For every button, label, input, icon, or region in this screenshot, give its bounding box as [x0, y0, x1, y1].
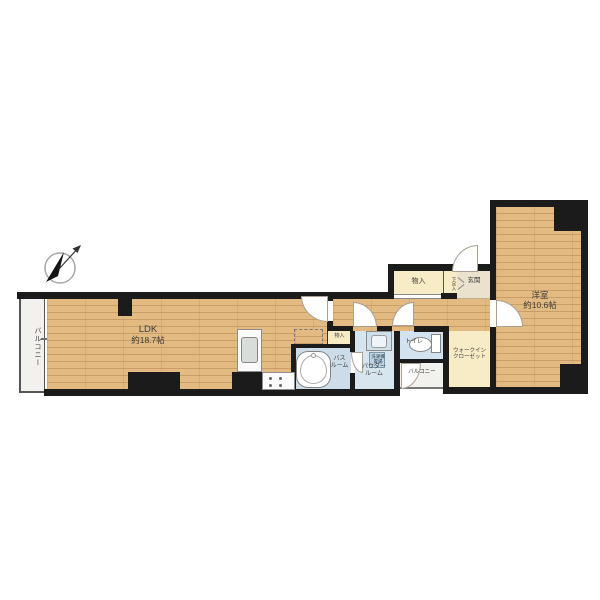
- stove-burner: [269, 384, 272, 387]
- vanity-unit: [366, 331, 392, 351]
- wall-western-left-upper: [490, 200, 496, 300]
- north-compass-icon: [36, 240, 88, 288]
- powder-label-1: パウダー: [353, 364, 395, 371]
- bathtub-faucet: [311, 353, 316, 358]
- pillar-top-right: [554, 200, 588, 231]
- shoe-box-label: 下足入: [445, 273, 456, 294]
- stove-burner: [279, 384, 282, 387]
- bath-label-1: バス: [327, 356, 352, 363]
- entrance-door-swing: [452, 245, 478, 272]
- stove-burner: [279, 377, 282, 380]
- storage-top-sliding-door: [394, 294, 443, 299]
- ldk-size: 約18.7帖: [104, 336, 192, 346]
- wall-bath-powder-upper: [350, 331, 355, 352]
- storage-small-label: 物入: [329, 334, 350, 340]
- vanity-basin: [371, 335, 387, 348]
- western-room-size: 約10.6帖: [500, 301, 580, 311]
- storage-top-label: 物入: [394, 278, 443, 286]
- ldk-label: LDK 約18.7帖: [104, 325, 192, 346]
- bath-label-2: ルーム: [327, 363, 352, 370]
- bathtub: [296, 351, 331, 388]
- western-room-label: 洋室 約10.6帖: [500, 291, 580, 311]
- toilet-label: トイレ: [400, 339, 428, 346]
- bath-label: バス ルーム: [327, 356, 352, 370]
- bathtub-inner: [300, 355, 327, 384]
- pillar-top-ldk: [118, 297, 132, 316]
- balcony-left-label: バルコニー: [25, 314, 41, 380]
- kitchen-sink: [241, 337, 258, 363]
- kitchen-stove: [262, 372, 295, 390]
- floor-plan: 洗濯機 置場 LDK 約18.7帖 洋室 約10.6帖 バルコニー 物入 下足入…: [0, 0, 600, 600]
- powder-label-2: ルーム: [353, 371, 395, 378]
- balcony-small-label: バルコニー: [402, 369, 442, 375]
- toilet-tank: [431, 334, 441, 353]
- wic-label-2: クローゼット: [448, 354, 491, 360]
- pillar-bottom-ldk: [128, 372, 180, 391]
- pillar-bottom-right: [560, 364, 588, 394]
- wall-bottom-main: [44, 389, 400, 396]
- powder-label: パウダー ルーム: [353, 364, 395, 378]
- stove-burner: [269, 377, 272, 380]
- kitchen-counter-dark: [232, 372, 262, 390]
- wall-upper-top-left: [388, 264, 457, 271]
- wall-bath-top: [291, 344, 352, 348]
- wall-top-main: [17, 292, 394, 299]
- walk-in-closet-label: ウォークイン クローゼット: [448, 348, 491, 361]
- entrance-label: 玄関: [459, 277, 489, 284]
